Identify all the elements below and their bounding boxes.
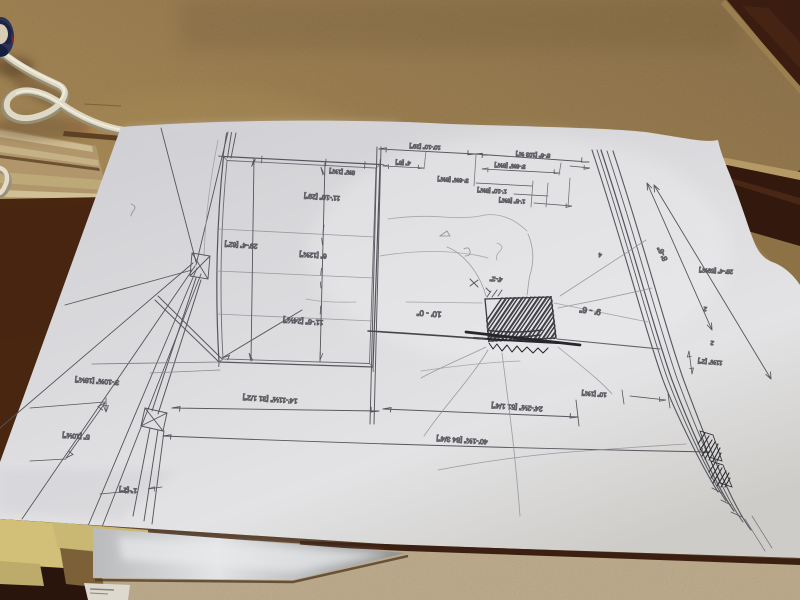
svg-text:10' - 0": 10' - 0" bbox=[416, 308, 442, 319]
svg-text:4" [8"]: 4" [8"] bbox=[395, 159, 411, 166]
svg-text:4'-2": 4'-2" bbox=[489, 275, 503, 283]
